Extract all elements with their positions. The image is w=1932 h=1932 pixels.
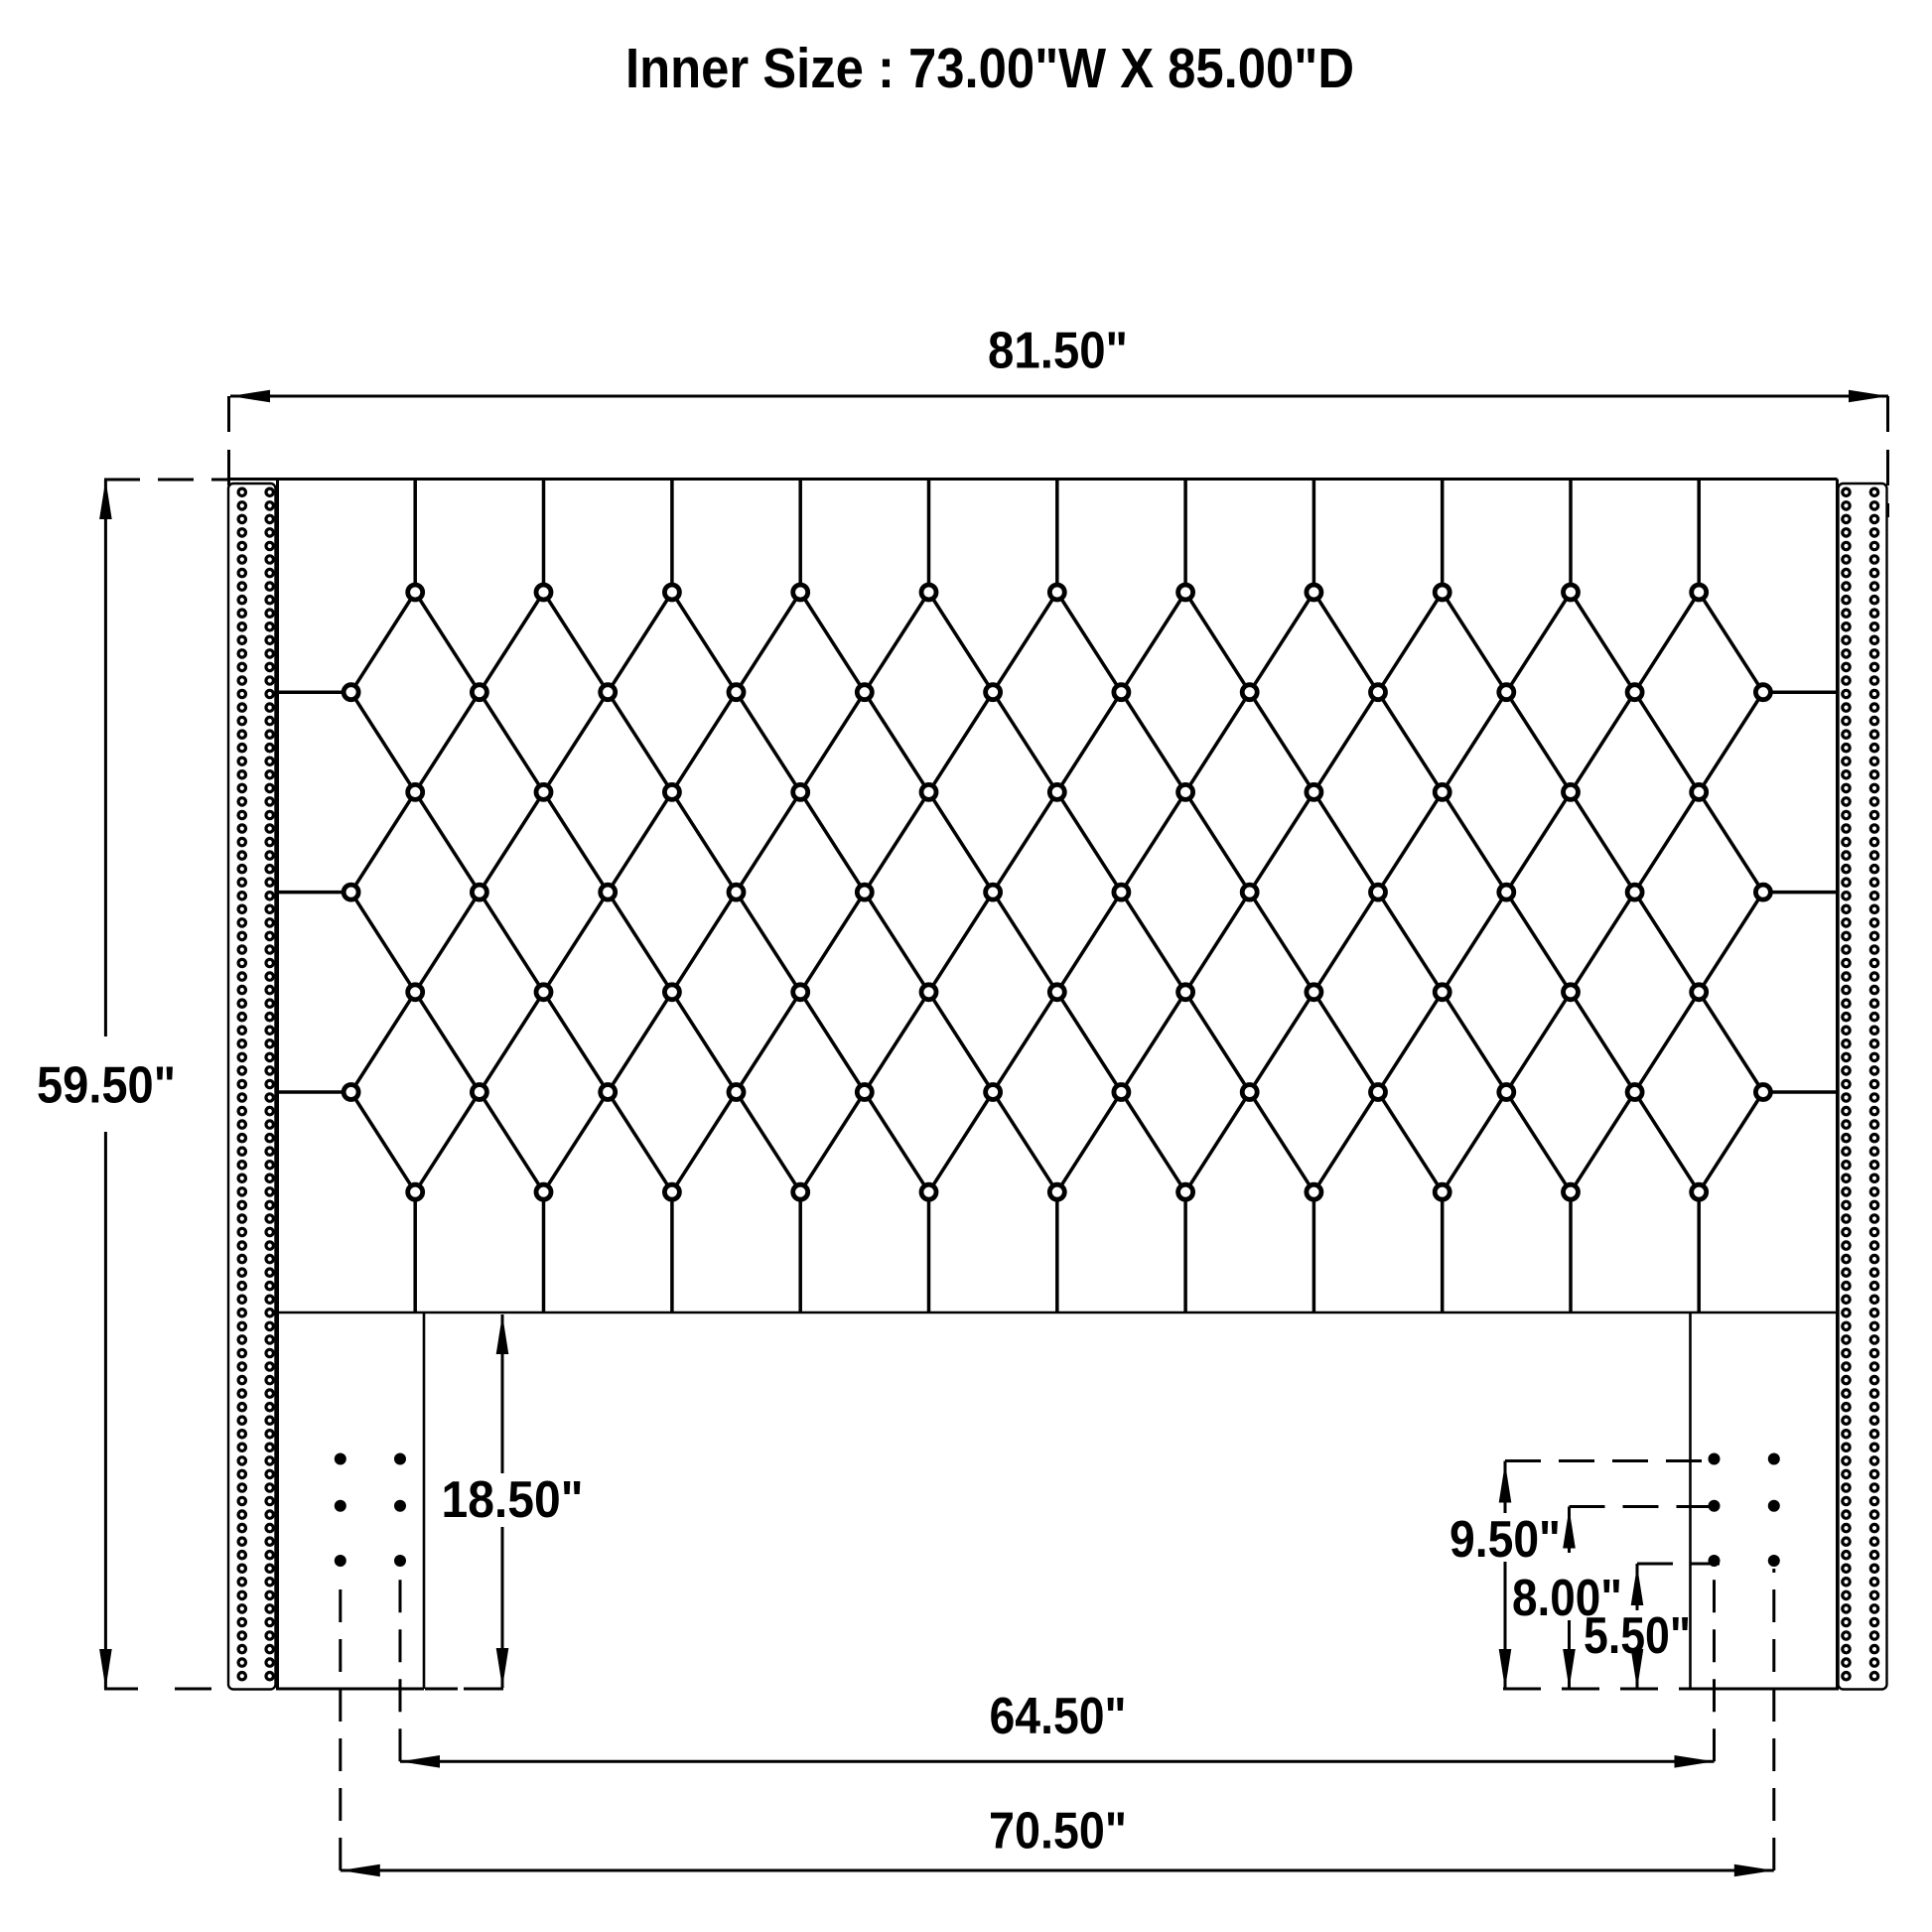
svg-text:5.50": 5.50" — [1584, 1607, 1691, 1665]
svg-text:9.50": 9.50" — [1449, 1511, 1561, 1569]
svg-text:81.50": 81.50" — [988, 323, 1128, 380]
svg-text:70.50": 70.50" — [989, 1803, 1127, 1861]
svg-text:Inner Size : 73.00"W X 85.00"D: Inner Size : 73.00"W X 85.00"D — [625, 37, 1354, 100]
svg-text:64.50": 64.50" — [990, 1688, 1127, 1745]
svg-text:18.50": 18.50" — [442, 1471, 584, 1529]
svg-text:59.50": 59.50" — [37, 1057, 176, 1115]
